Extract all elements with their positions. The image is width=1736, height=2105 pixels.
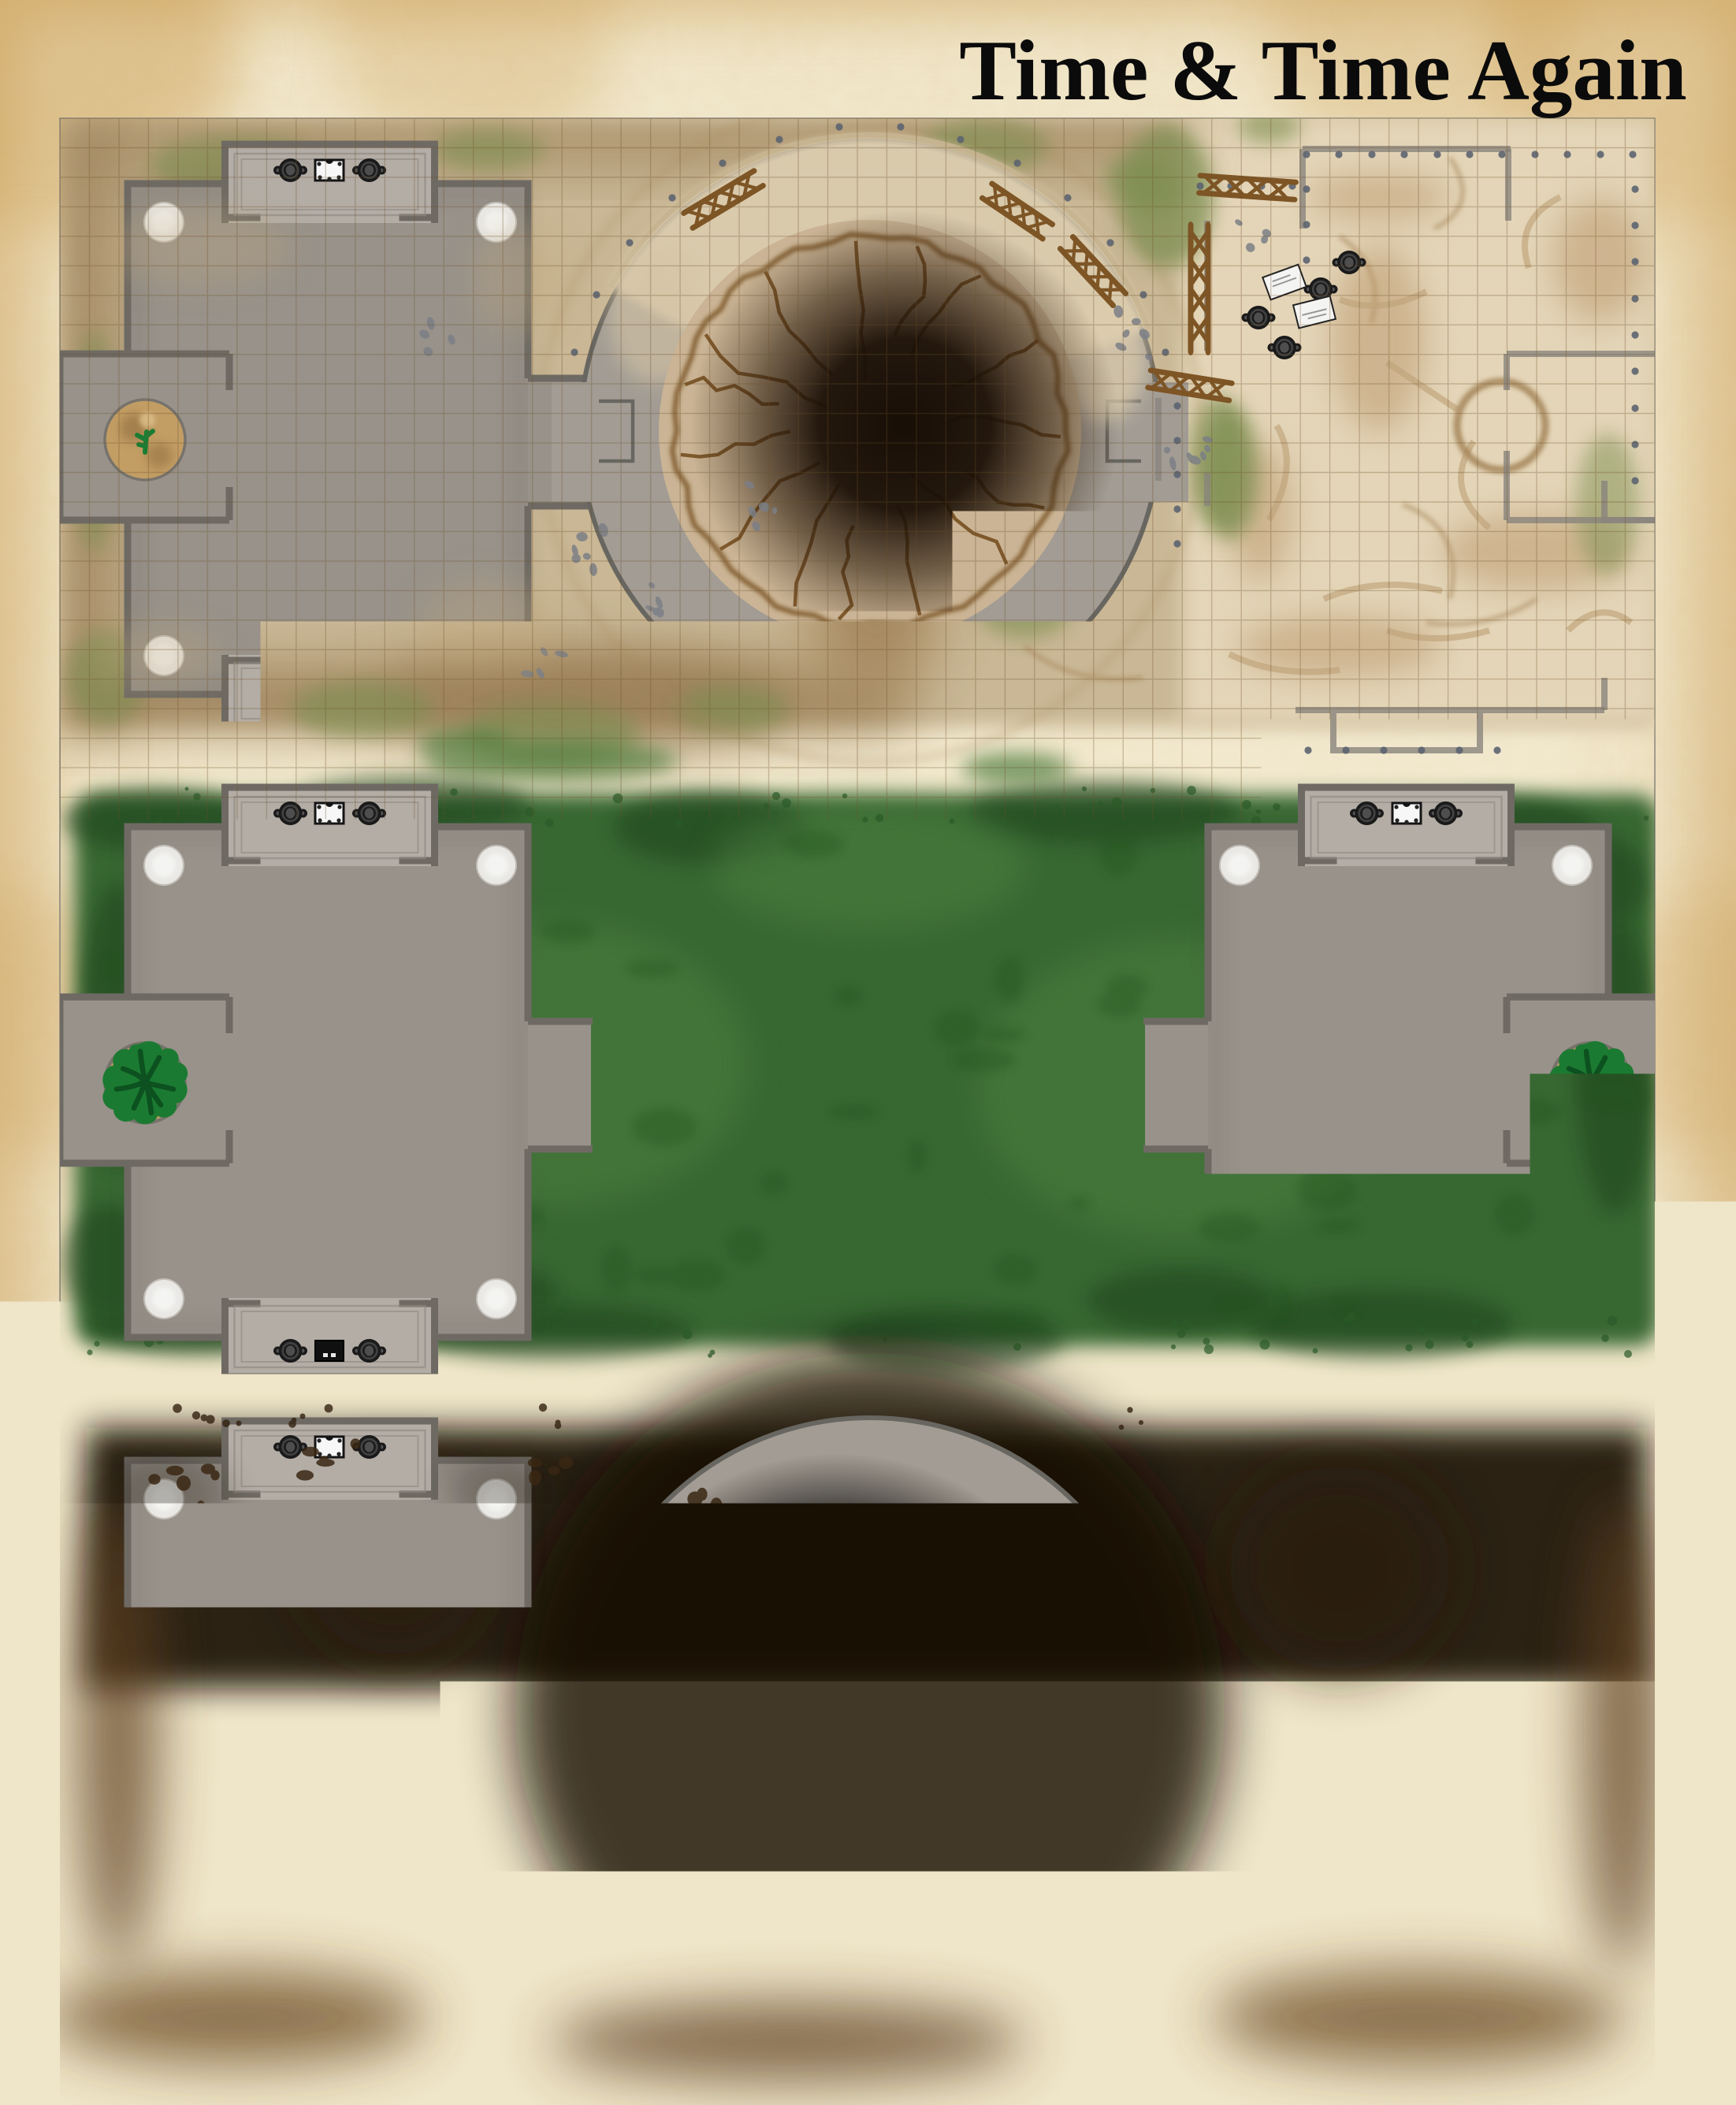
svg-text:Time & Time Again: Time & Time Again xyxy=(959,23,1687,118)
